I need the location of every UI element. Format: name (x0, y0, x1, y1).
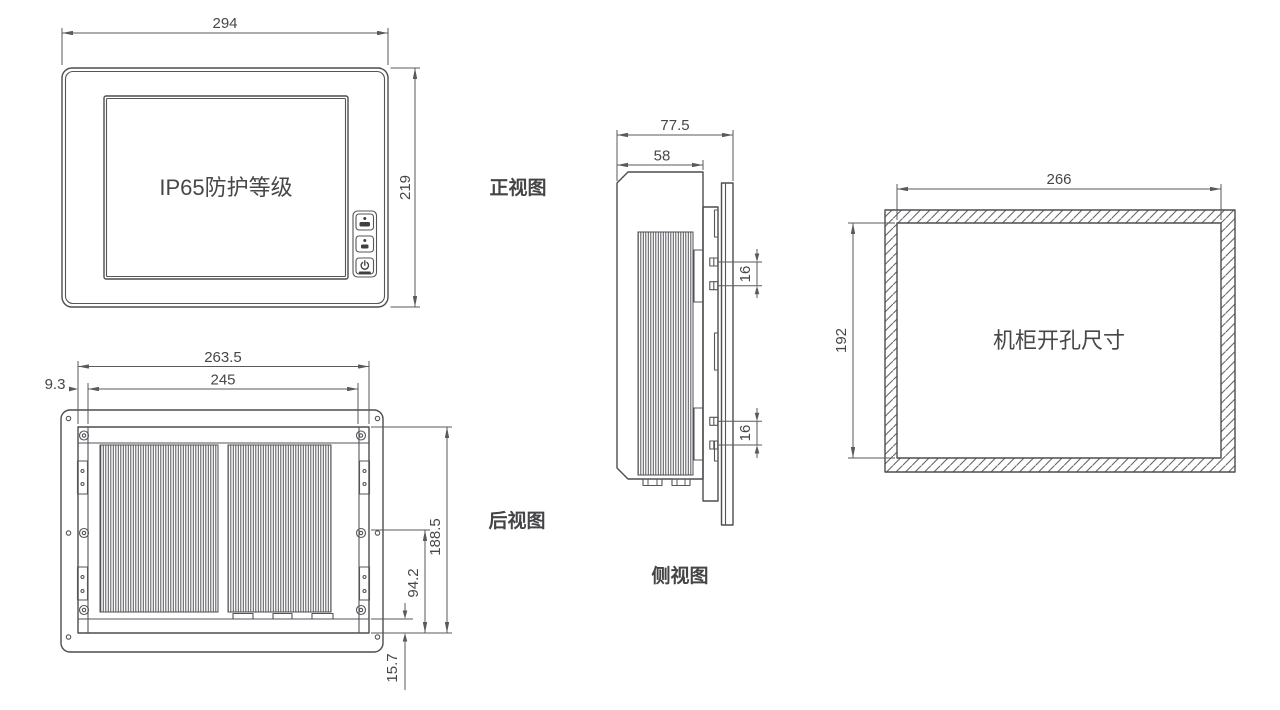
side-clamp-spacing-upper-value: 16 (737, 266, 754, 283)
cutout-view: 机柜开孔尺寸 266 192 (833, 171, 1235, 472)
rear-heatsink-fins-left (100, 445, 218, 612)
rear-bottom-connectors (233, 614, 333, 620)
dot-bar-icon (361, 239, 369, 249)
panel-pc-dimension-drawing: IP65防护等级 29 (0, 0, 1280, 710)
front-width-value: 294 (212, 15, 237, 32)
rear-bottom-offset-dimension: 15.7 (371, 603, 413, 690)
cutout-height-value: 192 (833, 328, 850, 353)
side-clamp-spacing-lower-value: 16 (737, 425, 754, 442)
rear-half-height-dimension: 94.2 (371, 530, 430, 633)
side-body-depth-dimension: 58 (617, 148, 703, 171)
side-front-bezel (722, 183, 734, 525)
rear-body-width-dimension: 245 (88, 372, 358, 425)
front-height-dimension: 219 (391, 68, 421, 307)
front-button-panel (353, 211, 377, 277)
side-view-label: 侧视图 (651, 564, 708, 587)
rear-heatsink-fins-right (228, 445, 331, 612)
side-body-depth-value: 58 (654, 148, 671, 165)
side-mounting-rail-lower (694, 408, 703, 460)
rear-view-label: 后视图 (488, 509, 545, 532)
front-view-label: 正视图 (489, 176, 546, 199)
side-bottom-connectors (643, 479, 690, 486)
drawing-svg: IP65防护等级 29 (0, 0, 1280, 710)
side-heatsink-fins (638, 232, 693, 475)
cutout-label: 机柜开孔尺寸 (993, 328, 1125, 353)
power-icon (359, 260, 371, 274)
rear-mount-height-value: 188.5 (427, 518, 444, 556)
dot-bar-icon (360, 217, 371, 227)
rear-edge-offset-value: 9.3 (45, 376, 66, 393)
side-clamp-screws (710, 258, 718, 449)
cutout-width-value: 266 (1046, 171, 1071, 188)
front-width-dimension: 294 (62, 15, 388, 65)
rear-body-width-value: 245 (210, 372, 235, 389)
rear-view: 263.5 245 9.3 188.5 94.2 (45, 349, 546, 690)
side-view: 77.5 58 16 16 侧视图 (617, 117, 762, 587)
side-clamp-spacing-lower-dimension: 16 (718, 408, 762, 458)
side-clamp-spacing-upper-dimension: 16 (718, 249, 762, 298)
front-screen-text: IP65防护等级 (159, 175, 292, 200)
rear-edge-offset-dimension: 9.3 (45, 376, 78, 393)
side-total-depth-value: 77.5 (660, 117, 689, 134)
front-view: IP65防护等级 29 (62, 15, 547, 307)
side-mounting-bar (703, 207, 718, 501)
front-height-value: 219 (397, 175, 414, 200)
rear-mount-width-value: 263.5 (204, 349, 242, 366)
function-button-lower (356, 236, 374, 252)
rear-bottom-offset-value: 15.7 (384, 653, 401, 682)
side-mounting-rail-upper (694, 250, 703, 302)
rear-half-height-value: 94.2 (405, 568, 422, 597)
